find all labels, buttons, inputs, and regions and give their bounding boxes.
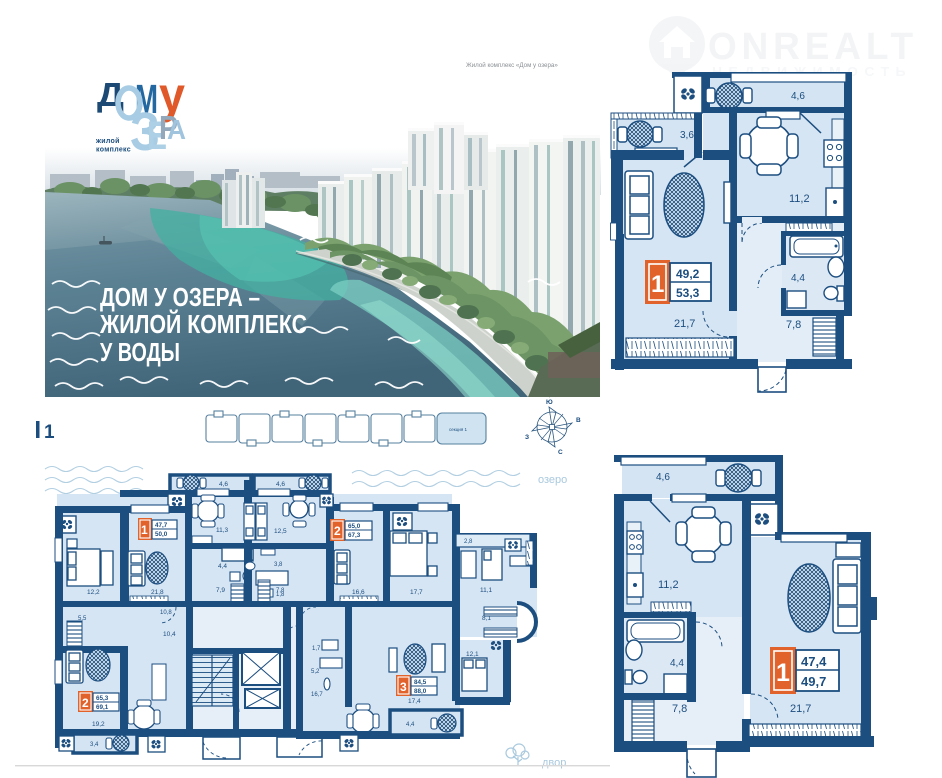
svg-text:7,9: 7,9 (216, 587, 225, 594)
svg-text:1: 1 (141, 523, 148, 537)
svg-text:2: 2 (334, 524, 341, 538)
svg-text:88,0: 88,0 (414, 688, 427, 695)
svg-text:12,1: 12,1 (466, 651, 479, 658)
svg-text:4,4: 4,4 (406, 722, 415, 728)
svg-text:12,5: 12,5 (274, 528, 287, 535)
svg-text:3,4: 3,4 (90, 742, 99, 748)
svg-text:67,3: 67,3 (348, 532, 361, 539)
svg-text:5,2: 5,2 (311, 669, 320, 675)
svg-text:11,1: 11,1 (480, 587, 493, 594)
svg-text:10,4: 10,4 (163, 631, 176, 638)
svg-text:4,6: 4,6 (219, 481, 228, 488)
svg-text:4,4: 4,4 (218, 563, 227, 570)
svg-text:7,8: 7,8 (276, 588, 285, 594)
svg-text:50,0: 50,0 (155, 531, 168, 538)
svg-text:65,0: 65,0 (348, 523, 361, 530)
svg-text:16,6: 16,6 (352, 589, 365, 596)
svg-text:4,6: 4,6 (276, 481, 285, 488)
svg-text:3: 3 (400, 680, 407, 694)
svg-text:3,8: 3,8 (274, 562, 283, 568)
svg-text:17,7: 17,7 (410, 589, 423, 596)
svg-text:19,2: 19,2 (92, 721, 105, 728)
svg-text:5,5: 5,5 (78, 616, 87, 622)
svg-text:17,4: 17,4 (408, 698, 421, 705)
svg-text:2,8: 2,8 (464, 539, 473, 545)
svg-text:12,2: 12,2 (87, 589, 100, 596)
svg-text:69,1: 69,1 (96, 704, 109, 711)
svg-text:16,7: 16,7 (311, 692, 323, 698)
svg-text:10,8: 10,8 (160, 610, 172, 616)
svg-text:21,8: 21,8 (151, 589, 164, 596)
svg-text:8,1: 8,1 (482, 615, 491, 622)
svg-text:2: 2 (82, 696, 89, 710)
svg-text:47,7: 47,7 (155, 522, 168, 529)
svg-text:1,7: 1,7 (312, 646, 321, 652)
svg-text:84,5: 84,5 (414, 679, 427, 686)
svg-text:65,3: 65,3 (96, 695, 109, 702)
svg-text:11,3: 11,3 (216, 527, 229, 534)
